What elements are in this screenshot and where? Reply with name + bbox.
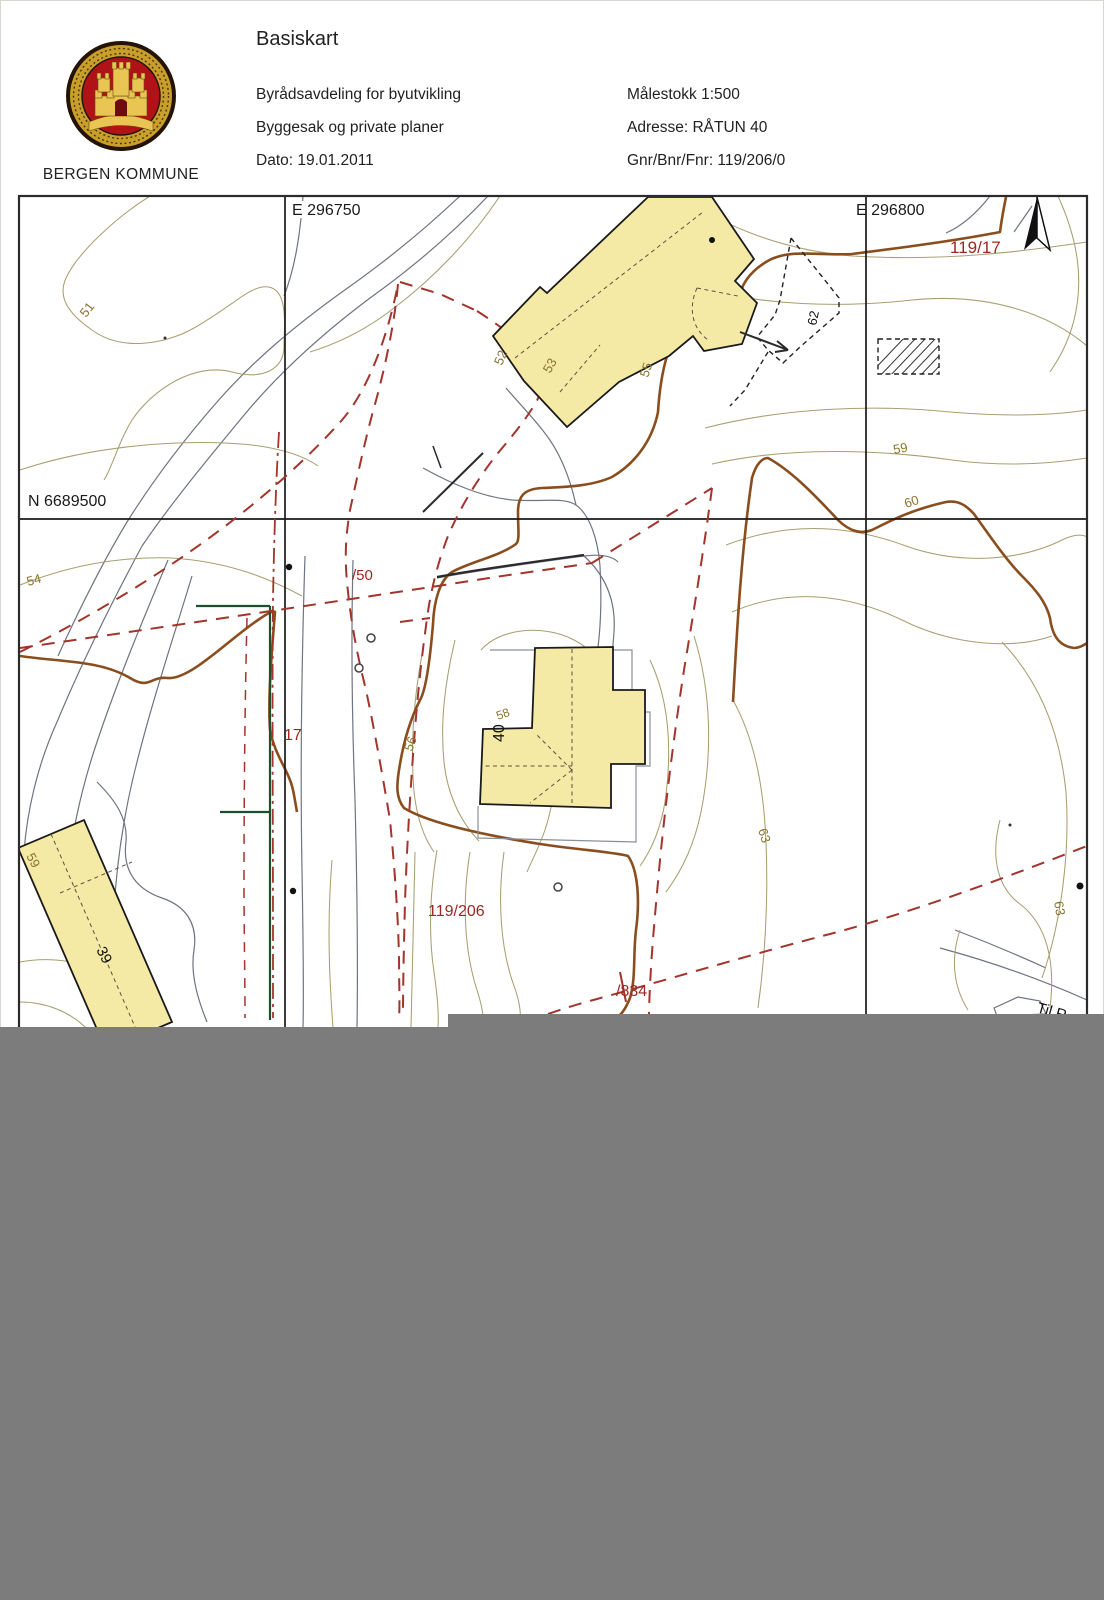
small-dot [164,337,167,340]
contour-label-58: 58 [494,705,512,723]
feature-label-62: 62 [804,309,822,326]
contour-label-59a: 59 [892,440,909,457]
scanned-map-page: BERGEN KOMMUNE Basiskart Byrådsavdeling … [0,0,1104,1600]
small-dot [1009,824,1012,827]
boundary-dash-dot [273,432,279,1018]
manhole-circle [367,634,375,642]
manhole-circle [355,664,363,672]
north-arrow-icon [1024,197,1050,250]
survey-dot [290,888,296,894]
manhole-circle [554,883,562,891]
grid-label-north-1: N 6689500 [28,493,106,510]
redaction-block-main [0,1027,1104,1600]
boundary-thin-dashed [244,618,247,1018]
contour-label-60: 60 [902,492,920,511]
contour-label-63b: 63 [1051,900,1068,917]
building-39 [18,820,172,1050]
survey-dot [709,237,715,243]
parcel-label-834: /834 [616,983,647,1000]
grid-label-east-1: E 296750 [292,202,361,219]
parcel-label-119-17: 119/17 [950,238,1001,257]
house-label-40: 40 [491,724,508,742]
parcel-label-119-206: 119/206 [428,903,485,920]
fence-lines [196,606,270,1020]
house-label-17: 17 [284,727,302,744]
house-label-50: /50 [352,567,373,584]
survey-dot [286,564,292,570]
survey-dot [1077,883,1084,890]
contour-label-54: 54 [25,571,43,589]
building-large-north [493,197,757,427]
hatched-area [868,336,966,378]
grid-label-east-2: E 296800 [856,202,925,219]
buildings [18,197,757,1050]
contour-label-51: 51 [77,299,98,320]
contour-label-63a: 63 [755,826,774,844]
